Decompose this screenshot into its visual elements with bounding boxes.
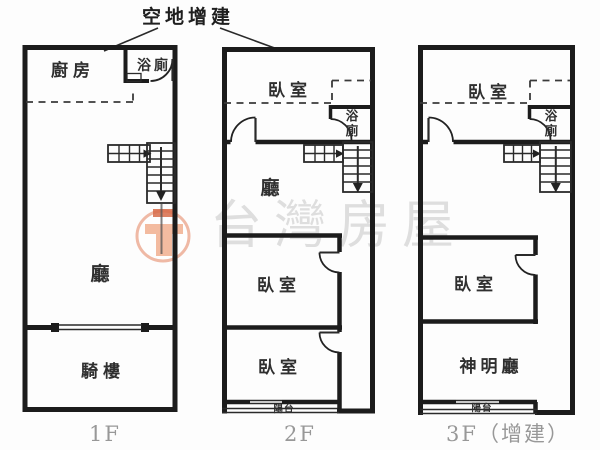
room-label-kitchen: 廚房 [51,60,95,81]
logo-accent [153,209,174,217]
stair-down-arrow-icon [156,191,166,201]
storefront-divider [25,323,177,332]
dashed-void [530,81,570,104]
staircase-2f [304,142,373,193]
room-label-bath-line2: 廁 [346,123,359,138]
door-swing [516,255,536,275]
watermark: 台灣房屋 [137,196,466,261]
room-label-bathroom: 浴廁 [137,57,171,74]
floor-label-1f: 1F [89,422,121,446]
room-label-bedroom-middle: 臥室 [454,274,498,295]
door-swing [429,118,454,143]
floor-plan-image: 台灣房屋 空地增建 [0,0,600,450]
stair-down-arrow-icon [353,183,363,193]
floor-label-3f: 3F（增建） [446,422,570,446]
room-label-shrine-hall: 神明廳 [460,356,523,377]
floor-label-2f: 2F [284,422,316,446]
room-label-bedroom-middle: 臥室 [257,275,301,296]
room-label-arcade: 騎樓 [81,361,125,382]
room-label-bath-line1: 浴 [346,108,359,123]
room-label-balcony: 陽台 [471,402,492,414]
floor-plan-canvas: 台灣房屋 空地增建 [0,0,600,450]
room-label-bedroom-top: 臥室 [268,80,312,101]
room-label-bath-line2: 廁 [545,123,558,138]
annotation-label: 空地增建 [142,5,234,28]
dashed-void [332,81,371,104]
room-label-bath-line1: 浴 [545,108,558,123]
annotation-leader-right [220,28,280,50]
room-label-living-room: 廳 [260,176,279,199]
stair-down-arrow-icon [551,183,561,193]
door-swing [320,333,340,353]
room-label-bedroom-top: 臥室 [468,82,512,103]
room-label-balcony: 陽台 [273,403,294,415]
annotation-vacant-land-addition: 空地增建 [104,5,280,51]
taiwan-housing-logo-icon [137,209,189,261]
room-label-bedroom-front: 臥室 [258,357,302,378]
logo-t-stem [156,234,172,256]
staircase-3f [504,142,571,193]
door-swing [231,118,256,143]
room-label-living-room: 廳 [90,262,109,285]
